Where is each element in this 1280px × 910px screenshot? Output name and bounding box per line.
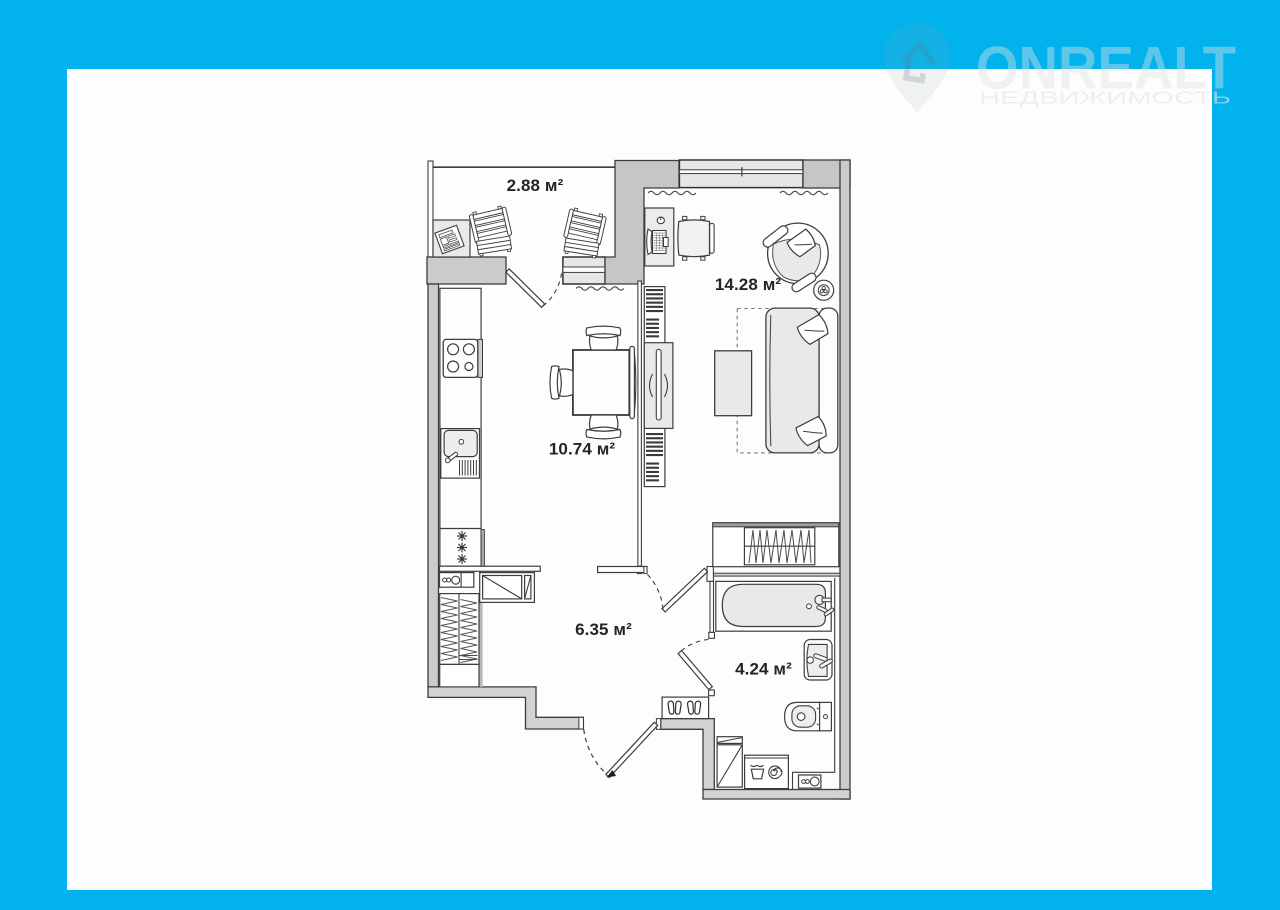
svg-text:4.24 м²: 4.24 м² [735,660,792,679]
svg-text:6.35 м²: 6.35 м² [575,620,632,639]
svg-text:10.74 м²: 10.74 м² [549,440,616,459]
svg-text:НЕДВИЖИМОСТЬ: НЕДВИЖИМОСТЬ [979,88,1231,108]
svg-text:14.28 м²: 14.28 м² [715,275,782,294]
svg-text:2.88 м²: 2.88 м² [507,176,564,195]
